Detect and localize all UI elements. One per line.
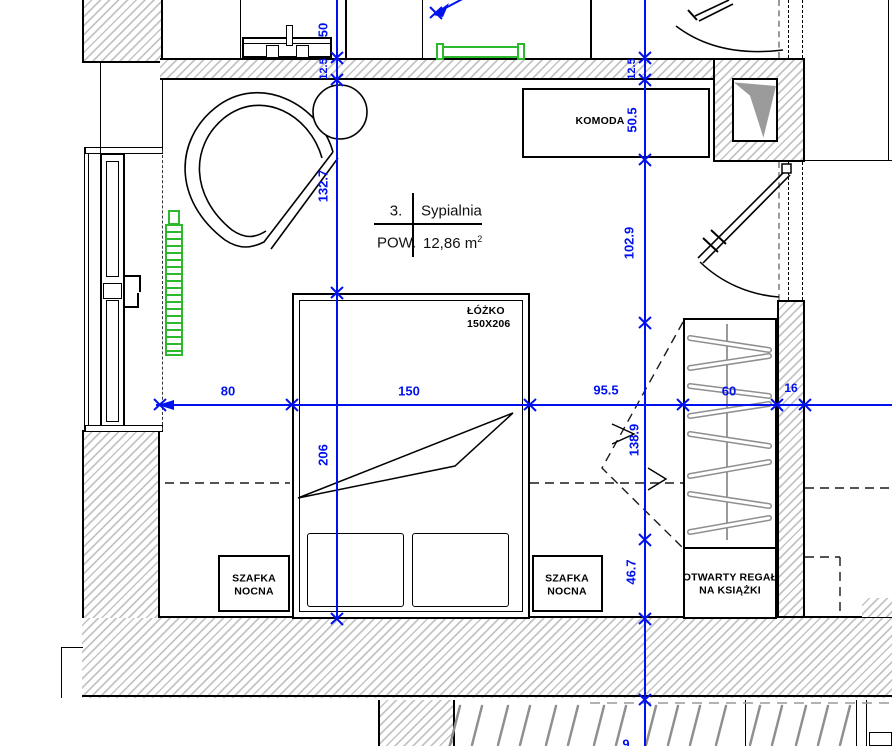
window-outer-sill <box>84 147 89 432</box>
radiator-valve <box>168 210 180 225</box>
room-area-value: 12,86 m2 <box>423 234 482 252</box>
lower-room-slats <box>450 706 850 745</box>
door-opening-dash <box>788 162 789 300</box>
dim-top-offset: 50 <box>316 23 331 37</box>
radiator-horizontal <box>441 46 521 58</box>
dim-wall-top-right: 12.5 <box>626 58 638 79</box>
wall-face-line <box>162 80 163 150</box>
divider-line <box>345 0 347 58</box>
room-title-hline <box>374 223 482 225</box>
dim-bottom-partial: 9 <box>622 737 629 746</box>
window-sash-bottom <box>106 300 119 422</box>
divider-line <box>240 0 241 58</box>
window-reveal-dash <box>162 150 163 430</box>
corner-notch-h <box>61 647 83 648</box>
window-cap-top <box>85 147 163 154</box>
wall-top-left-block <box>82 0 163 63</box>
nightstand-left-label: SZAFKA NOCNA <box>232 573 276 598</box>
window-mullion <box>103 283 122 299</box>
divider-line <box>888 0 889 160</box>
pillow-left <box>307 533 404 607</box>
wall-corner-patch <box>862 598 892 617</box>
side-table <box>313 85 367 139</box>
floor-plan: 3. Sypialnia POW. 12,86 m2 KOMODA ŁÓŻKO … <box>0 0 892 746</box>
dim-komoda-depth: 50.5 <box>625 107 640 132</box>
pillow-right <box>412 533 509 607</box>
divider-line <box>422 0 423 58</box>
window-cap-bottom <box>85 425 163 432</box>
nightstand-right-label: SZAFKA NOCNA <box>545 573 589 598</box>
dim-right-upper: 102.9 <box>622 227 637 260</box>
dim-bookshelf-width: 60 <box>722 384 736 399</box>
room-name: Sypialnia <box>421 203 482 220</box>
dim-left-upper: 132.7 <box>316 170 331 203</box>
komoda-label: KOMODA <box>575 115 624 128</box>
door-opening-dash <box>802 0 803 58</box>
window-handles <box>125 276 140 307</box>
wall-bottom-outer-edge <box>82 695 892 697</box>
lower-room-divider <box>745 700 746 746</box>
niche-wedge <box>734 80 776 140</box>
dim-width-left: 80 <box>221 384 235 399</box>
wall-bottom <box>82 618 892 698</box>
room-number: 3. <box>390 203 403 220</box>
door-opening-dash <box>778 0 780 58</box>
dim-width-right: 95.5 <box>593 383 618 398</box>
dim-bed-width: 150 <box>398 384 420 399</box>
lower-room-box <box>869 732 892 746</box>
radiator-cap <box>517 43 525 60</box>
door-opening-dash <box>778 162 780 300</box>
upper-door <box>676 0 783 52</box>
corner-notch-v <box>61 647 62 698</box>
dim-right-lower: 46.7 <box>624 559 639 584</box>
vanity-spout <box>286 25 293 46</box>
dim-right-middle: 138.9 <box>627 424 642 457</box>
lower-room-line <box>866 700 867 746</box>
dim-wall-right: 16 <box>784 381 797 395</box>
wall-pier-below <box>378 700 455 746</box>
vanity-tap <box>266 45 279 58</box>
landing-floor-line <box>805 160 892 161</box>
door-opening-dash <box>788 0 789 58</box>
bed-label: ŁÓŻKO 150X206 <box>467 305 510 330</box>
lower-room-line <box>856 700 857 746</box>
wall-right <box>777 300 805 620</box>
vanity-tap <box>296 45 309 58</box>
dim-wall-top-left: 12.5 <box>318 58 330 79</box>
divider-line <box>590 0 592 58</box>
door-opening-dash <box>802 162 803 300</box>
radiator-vertical <box>165 224 183 356</box>
bookshelf-label: OTWARTY REGAŁ NA KSIĄŻKI <box>683 572 778 597</box>
wall-face-line <box>100 63 101 153</box>
window-sash-top <box>106 161 119 277</box>
wall-niche <box>732 78 778 142</box>
dim-bed-length: 206 <box>316 444 331 466</box>
room-area-label: POW. <box>377 235 416 252</box>
radiator-cap <box>436 43 444 60</box>
